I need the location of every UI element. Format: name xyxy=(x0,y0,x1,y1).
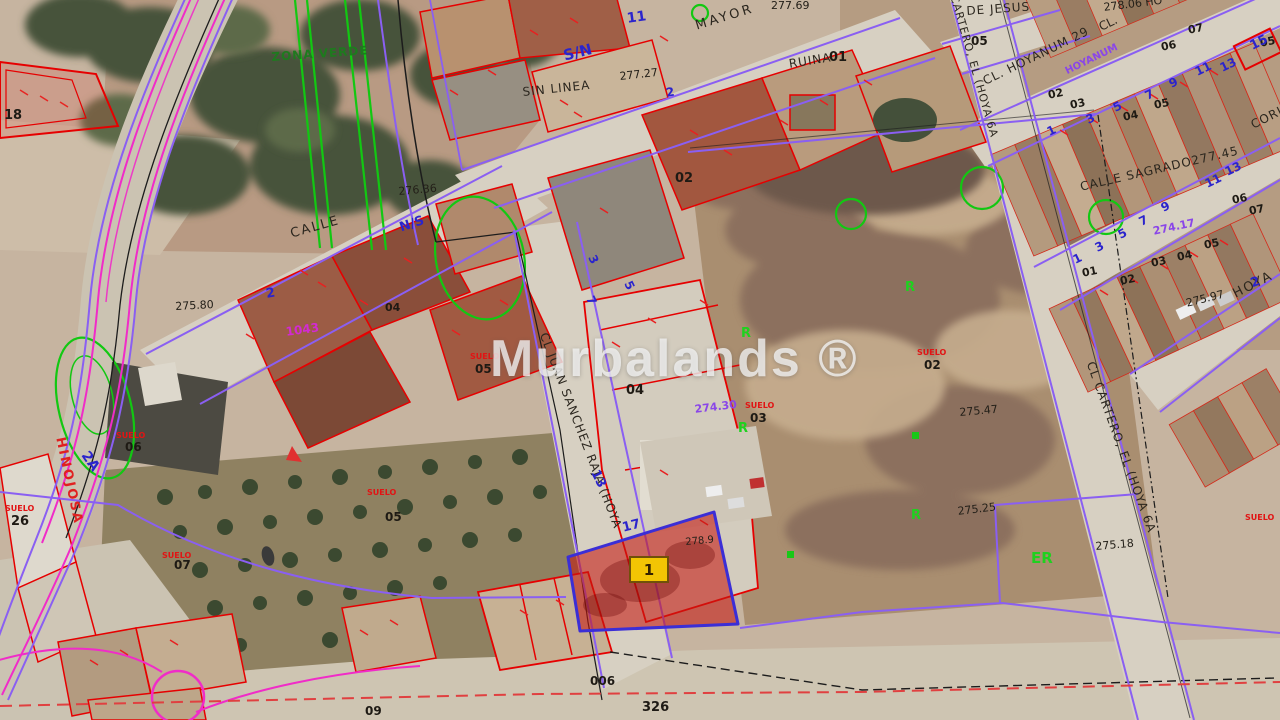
watermark: Murbalands ® xyxy=(490,329,859,389)
cadastral-map[interactable]: MAYORSIN LINEACALLECALLE SAGRADO277.45HO… xyxy=(0,0,1280,720)
white-roof xyxy=(138,362,182,406)
parcel-marker-badge[interactable]: 1 xyxy=(629,556,669,583)
tree xyxy=(873,98,937,142)
